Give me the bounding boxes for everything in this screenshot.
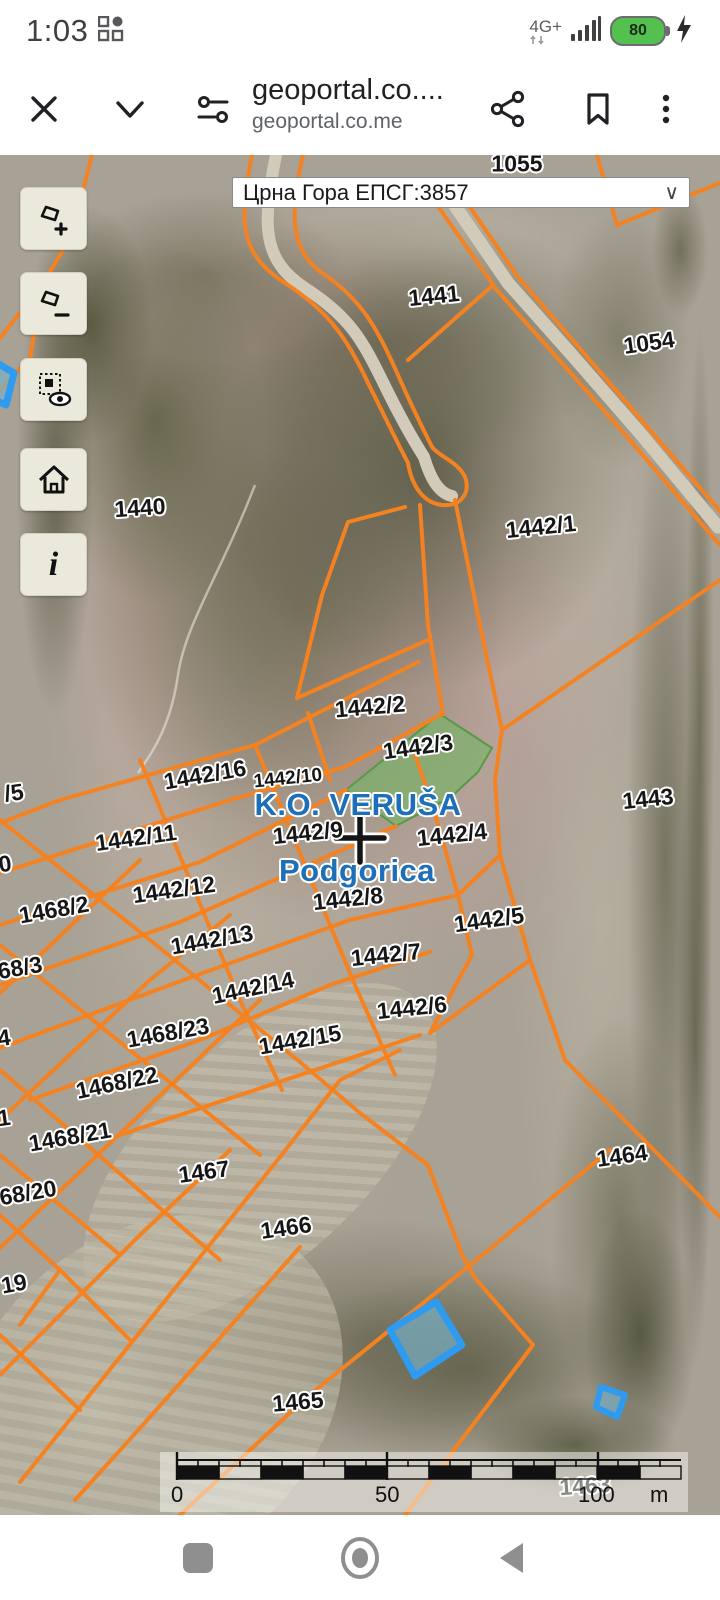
- phone-screen: 1:03 4G+: [0, 0, 720, 1600]
- projection-value: Црна Гора ЕПСГ:3857: [243, 180, 469, 206]
- bookmark-icon[interactable]: [568, 62, 628, 155]
- zoom-in-extent-button[interactable]: [20, 187, 87, 250]
- tune-settings-icon[interactable]: [183, 62, 243, 155]
- crosshair-icon: [336, 814, 384, 862]
- chevron-down-icon: ∨: [664, 180, 679, 205]
- screenshot-grid-icon: [98, 16, 124, 47]
- layer-visibility-button[interactable]: [20, 358, 87, 421]
- overflow-menu-icon[interactable]: [636, 62, 696, 155]
- footpath: [138, 485, 255, 773]
- scale-label-0: 0: [171, 1482, 183, 1508]
- network-type: 4G+: [529, 18, 562, 45]
- building-partial-left: [0, 360, 14, 405]
- scale-blocks: [177, 1466, 681, 1479]
- building-2: [596, 1387, 625, 1417]
- back-button[interactable]: [473, 1515, 553, 1600]
- scale-unit: m: [650, 1482, 668, 1508]
- cadastral-overlay: [0, 155, 720, 1515]
- status-bar: 1:03 4G+: [0, 0, 720, 62]
- scale-label-100: 100: [578, 1482, 615, 1508]
- browser-custom-tab-bar: geoportal.co.... geoportal.co.me: [0, 62, 720, 156]
- map-viewport[interactable]: 10551441105414401442/11442/21442/31442/1…: [0, 155, 720, 1515]
- data-arrows-icon: [529, 35, 547, 45]
- home-button[interactable]: [320, 1515, 400, 1600]
- close-button[interactable]: [14, 62, 74, 155]
- page-url: geoportal.co.me: [252, 110, 482, 134]
- info-button[interactable]: i: [20, 533, 87, 596]
- battery-indicator: 80: [610, 16, 666, 46]
- page-title-block[interactable]: geoportal.co.... geoportal.co.me: [252, 74, 482, 134]
- clock: 1:03: [26, 13, 88, 49]
- projection-select[interactable]: Црна Гора ЕПСГ:3857 ∨: [232, 177, 690, 208]
- building-footprints: [0, 360, 625, 1417]
- home-button[interactable]: [20, 448, 87, 511]
- scale-bar: 0 50 100 m: [160, 1452, 688, 1512]
- android-nav-bar: [0, 1515, 720, 1600]
- page-title: geoportal.co....: [252, 74, 482, 107]
- scale-label-50: 50: [375, 1482, 399, 1508]
- chevron-down-icon[interactable]: [100, 62, 160, 155]
- recents-button[interactable]: [158, 1515, 238, 1600]
- building-1: [390, 1302, 462, 1376]
- zoom-out-extent-button[interactable]: [20, 272, 87, 335]
- charging-bolt-icon: [674, 14, 694, 49]
- signal-bars-icon: [570, 16, 602, 47]
- share-icon[interactable]: [478, 62, 538, 155]
